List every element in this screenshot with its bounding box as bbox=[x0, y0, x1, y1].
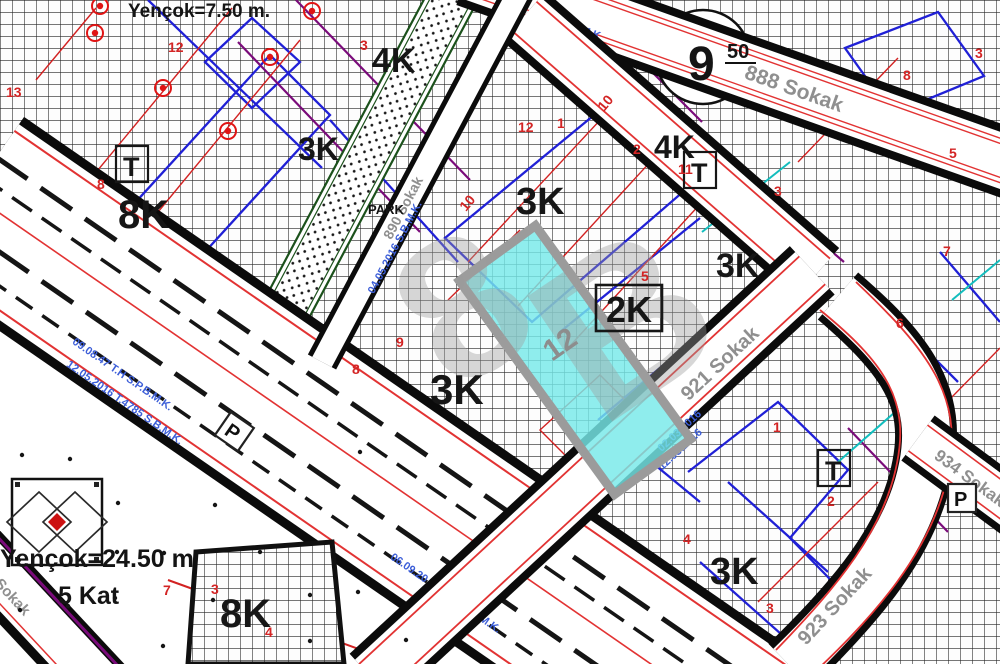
parcel-number: 2 bbox=[633, 141, 641, 157]
parcel-number: 12 bbox=[518, 119, 534, 135]
parcel-number: 9 bbox=[396, 334, 404, 350]
parcel-number: 1 bbox=[557, 115, 565, 131]
parcel-number: 3 bbox=[211, 581, 219, 597]
parcel-number: 7 bbox=[943, 243, 951, 259]
parcel-number: 8 bbox=[97, 176, 105, 192]
zone-label-3k: 3K bbox=[710, 551, 759, 593]
note-park: PARK bbox=[368, 202, 404, 217]
parcel-number: 12 bbox=[168, 39, 184, 55]
zone-label-8k: 8K bbox=[118, 193, 169, 237]
note-yencok-bottom: Yençok=24.50 m bbox=[0, 545, 194, 573]
junction-code: 50 bbox=[727, 41, 749, 63]
parcel-number: 4 bbox=[265, 624, 273, 640]
parcel-number: 13 bbox=[6, 84, 22, 100]
parcel-number: 5 bbox=[641, 268, 649, 284]
zone-label-3k: 3K bbox=[516, 181, 565, 223]
note-floors: 5 Kat bbox=[58, 582, 120, 610]
parcel-number: 6 bbox=[896, 315, 904, 331]
parcel-number: 7 bbox=[163, 582, 171, 598]
parcel-number: 4 bbox=[683, 531, 691, 547]
parcel-number: 3 bbox=[774, 183, 782, 199]
zone-label-2k: 2K bbox=[606, 289, 652, 330]
parcel-number: 3 bbox=[360, 37, 368, 53]
parcel-number: 5 bbox=[949, 145, 957, 161]
parcel-number: 2 bbox=[827, 493, 835, 509]
parcel-number: 3 bbox=[766, 600, 774, 616]
zone-label-4k: 4K bbox=[654, 129, 695, 165]
zoning-map: P 09.08.47 T.H S.P.B.M.K. 12.05.2016 T.4… bbox=[0, 0, 1000, 664]
zone-label-4k: 4K bbox=[372, 42, 416, 80]
trafo-symbol: T bbox=[825, 456, 842, 486]
trafo-symbol: T bbox=[123, 152, 140, 182]
junction-number: 9 bbox=[688, 38, 715, 91]
zone-label-3k: 3K bbox=[716, 247, 760, 285]
zone-label-8k: 8K bbox=[220, 592, 271, 636]
parcel-number: 11 bbox=[678, 161, 693, 177]
parking-symbol: P bbox=[954, 489, 967, 511]
zone-label-3k: 3K bbox=[298, 131, 339, 167]
zone-label-3k: 3K bbox=[430, 366, 484, 413]
parcel-number: 3 bbox=[975, 45, 983, 61]
parcel-number: 8 bbox=[352, 361, 360, 377]
parcel-number: 8 bbox=[903, 67, 911, 83]
parcel-number: 1 bbox=[773, 419, 781, 435]
trafo-symbol: T bbox=[691, 158, 708, 188]
note-yencok-top: Yençok=7.50 m. bbox=[128, 1, 270, 22]
